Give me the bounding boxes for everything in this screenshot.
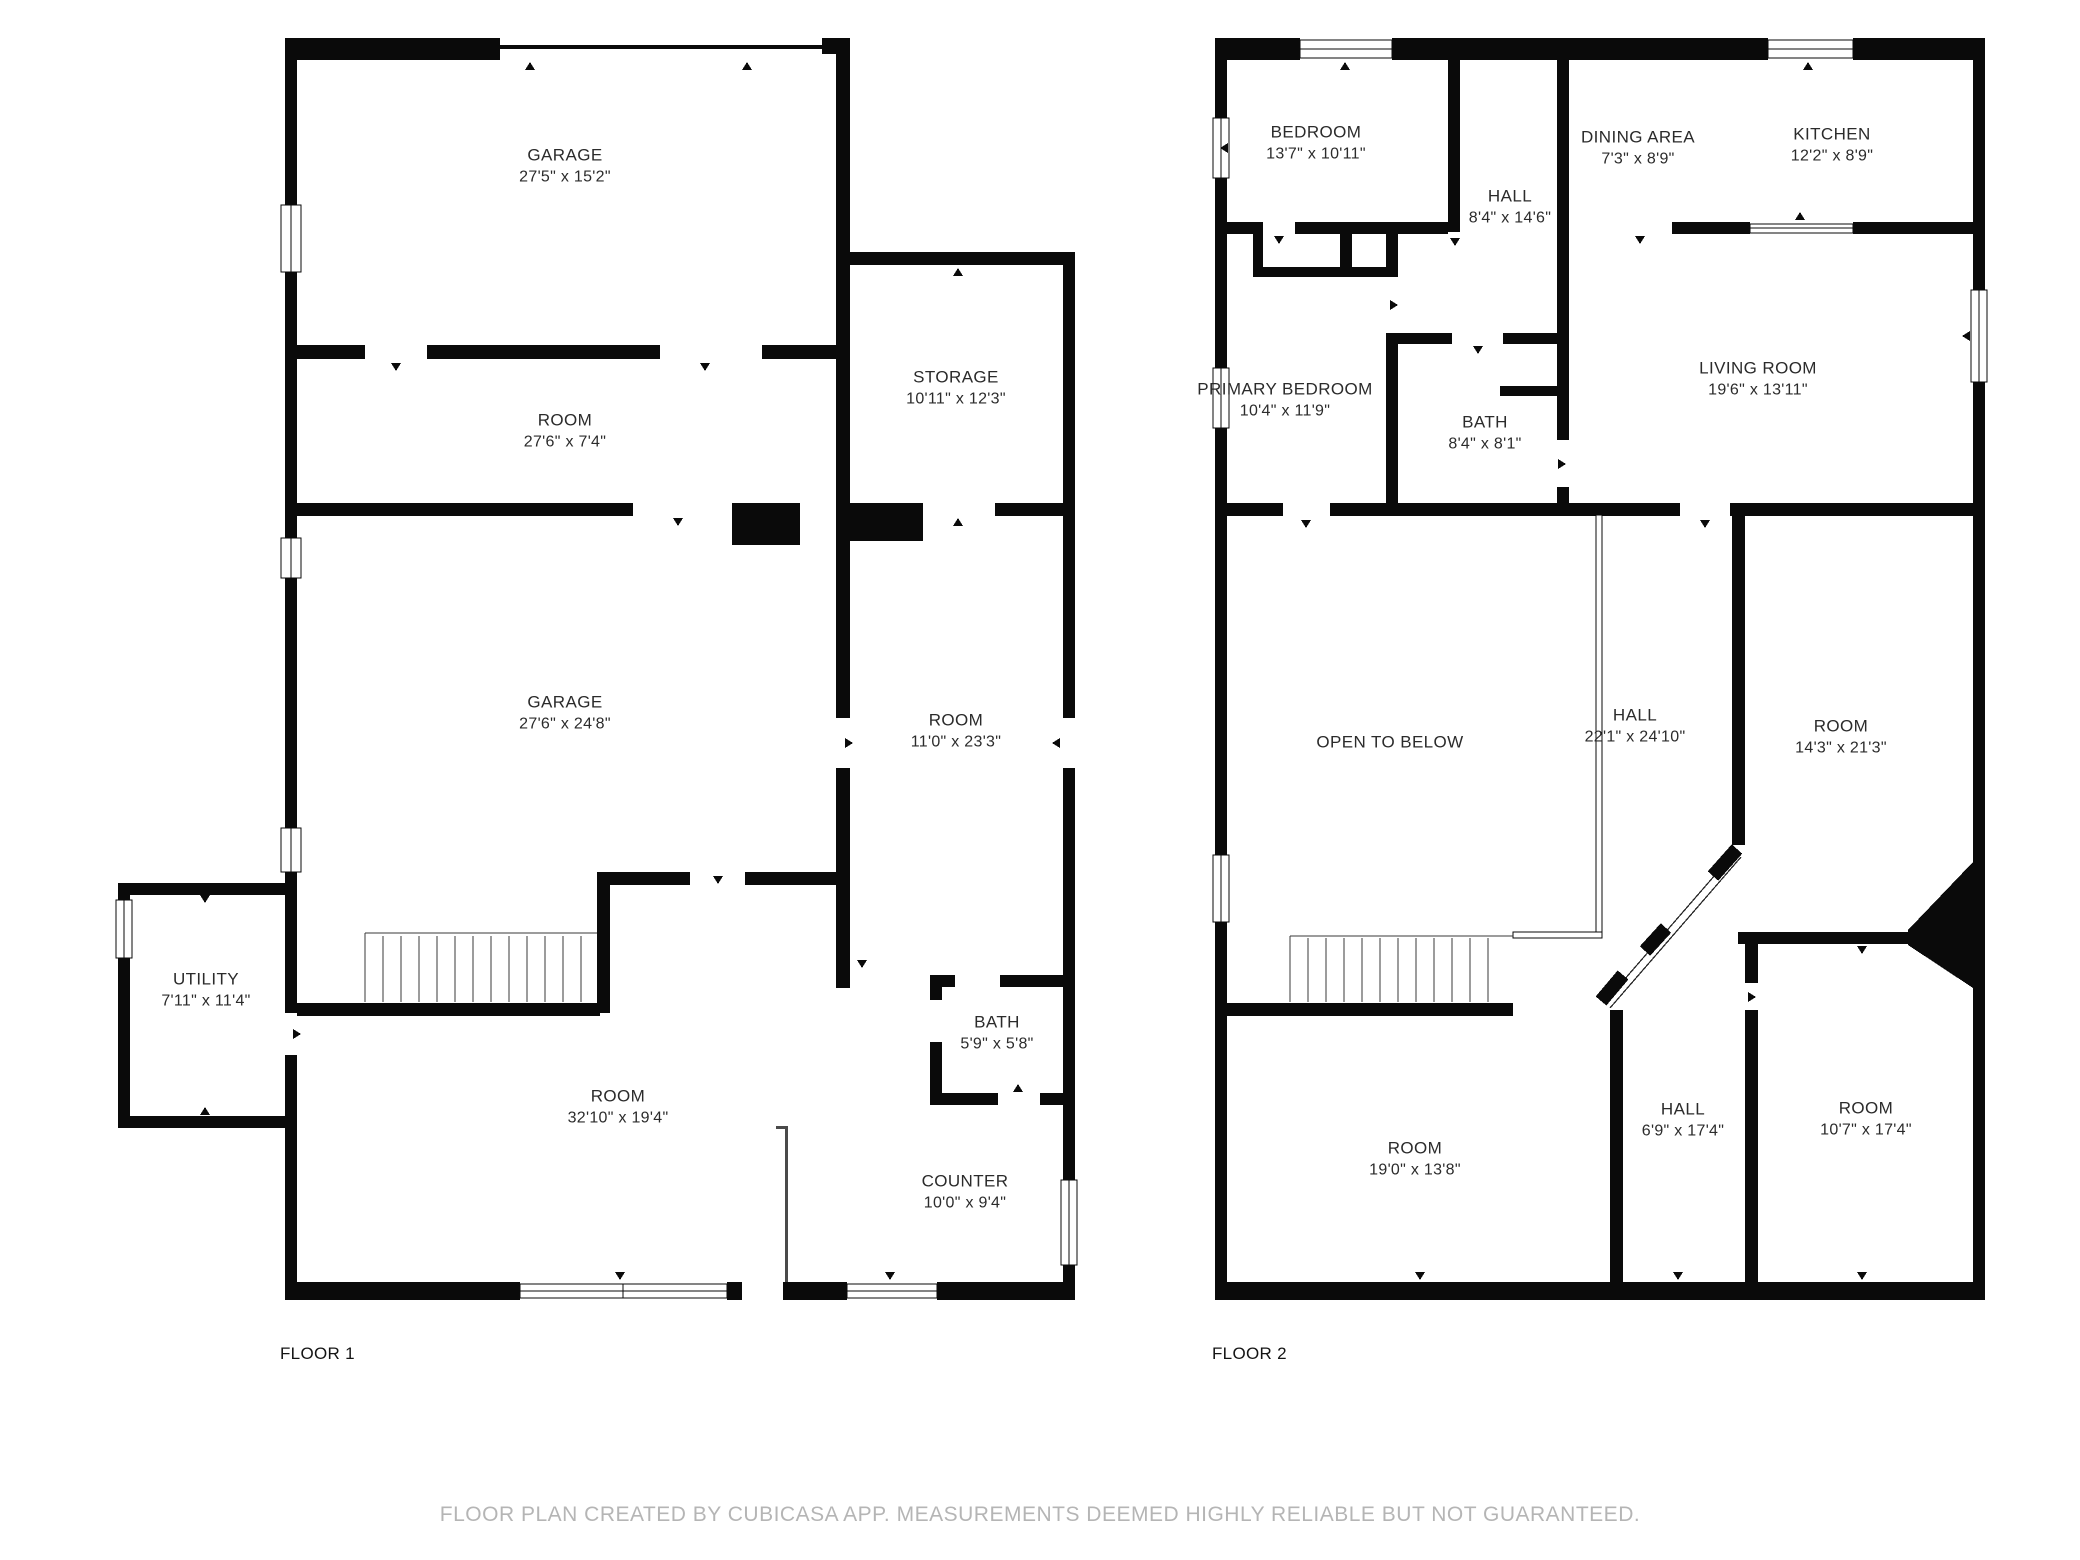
room-name: HALL: [1585, 704, 1686, 727]
room-name: HALL: [1642, 1098, 1724, 1121]
floor1-room-label-garage-main: GARAGE 27'6" x 24'8": [519, 691, 611, 736]
room-dims: 14'3" x 21'3": [1795, 738, 1887, 760]
floor1-room-label-garage-upper: GARAGE 27'5" x 15'2": [519, 144, 611, 189]
room-name: UTILITY: [161, 968, 250, 991]
room-dims: 5'9" x 5'8": [960, 1034, 1033, 1056]
floor2-diagonal-wall: [1601, 849, 1741, 1008]
room-name: GARAGE: [519, 691, 611, 714]
floor2-room-label-dining-area: DINING AREA 7'3" x 8'9": [1581, 126, 1695, 171]
room-dims: 13'7" x 10'11": [1266, 144, 1366, 166]
floor1-room-label-room-east: ROOM 11'0" x 23'3": [911, 709, 1001, 754]
room-dims: 19'6" x 13'11": [1699, 380, 1817, 402]
room-dims: 27'6" x 7'4": [524, 432, 606, 454]
floor2-caption: FLOOR 2: [1212, 1345, 1287, 1363]
floor2-room-label-hall-upper: HALL 8'4" x 14'6": [1469, 185, 1551, 230]
floor2-room-label-bath: BATH 8'4" x 8'1": [1448, 411, 1521, 456]
room-dims: 10'7" x 17'4": [1820, 1120, 1912, 1142]
floor2-stairs: [1290, 936, 1513, 1002]
room-name: KITCHEN: [1791, 123, 1873, 146]
floor1-room-label-utility: UTILITY 7'11" x 11'4": [161, 968, 250, 1013]
room-name: BATH: [1448, 411, 1521, 434]
floor1-room-label-storage: STORAGE 10'11" x 12'3": [906, 366, 1006, 411]
room-name: ROOM: [911, 709, 1001, 732]
floor1-room-label-room-upper: ROOM 27'6" x 7'4": [524, 409, 606, 454]
room-name: PRIMARY BEDROOM: [1197, 378, 1372, 401]
room-name: STORAGE: [906, 366, 1006, 389]
room-dims: 7'11" x 11'4": [161, 991, 250, 1013]
room-dims: 6'9" x 17'4": [1642, 1121, 1724, 1143]
floor1-room-label-bath: BATH 5'9" x 5'8": [960, 1011, 1033, 1056]
floor2-room-label-primary-bedroom: PRIMARY BEDROOM 10'4" x 11'9": [1197, 378, 1372, 423]
floor1-counter-partition: [776, 1126, 788, 1282]
floor2-room-label-room-se: ROOM 10'7" x 17'4": [1820, 1097, 1912, 1142]
room-dims: 32'10" x 19'4": [568, 1108, 669, 1130]
room-name: DINING AREA: [1581, 126, 1695, 149]
floor1-stairs: [365, 933, 597, 1002]
room-dims: 8'4" x 8'1": [1448, 434, 1521, 456]
room-name: BEDROOM: [1266, 121, 1366, 144]
room-dims: 27'6" x 24'8": [519, 714, 611, 736]
room-name: LIVING ROOM: [1699, 357, 1817, 380]
floor2-room-label-living-room: LIVING ROOM 19'6" x 13'11": [1699, 357, 1817, 402]
floor2-room-label-open-to-below: OPEN TO BELOW: [1316, 731, 1463, 754]
room-dims: 22'1" x 24'10": [1585, 727, 1686, 749]
room-name: BATH: [960, 1011, 1033, 1034]
room-dims: 7'3" x 8'9": [1581, 149, 1695, 171]
room-name: HALL: [1469, 185, 1551, 208]
room-dims: 8'4" x 14'6": [1469, 208, 1551, 230]
floor1-caption: FLOOR 1: [280, 1345, 355, 1363]
room-name: OPEN TO BELOW: [1316, 731, 1463, 754]
room-dims: 10'4" x 11'9": [1197, 401, 1372, 423]
room-name: ROOM: [1820, 1097, 1912, 1120]
floorplan-drawing: [0, 0, 2080, 1560]
room-name: GARAGE: [519, 144, 611, 167]
room-name: ROOM: [568, 1085, 669, 1108]
room-dims: 11'0" x 23'3": [911, 732, 1001, 754]
room-name: ROOM: [1795, 715, 1887, 738]
floor2-room-label-hall-lower: HALL 6'9" x 17'4": [1642, 1098, 1724, 1143]
floor2-room-label-hall-mid: HALL 22'1" x 24'10": [1585, 704, 1686, 749]
floor2-room-label-bedroom: BEDROOM 13'7" x 10'11": [1266, 121, 1366, 166]
room-dims: 19'0" x 13'8": [1369, 1160, 1461, 1182]
room-dims: 10'0" x 9'4": [922, 1193, 1009, 1215]
floor-plan-page: { "disclaimer": "FLOOR PLAN CREATED BY C…: [0, 0, 2080, 1560]
room-dims: 10'11" x 12'3": [906, 389, 1006, 411]
room-name: ROOM: [1369, 1137, 1461, 1160]
room-name: ROOM: [524, 409, 606, 432]
floor2-room-label-room-ne: ROOM 14'3" x 21'3": [1795, 715, 1887, 760]
floor2-room-label-kitchen: KITCHEN 12'2" x 8'9": [1791, 123, 1873, 168]
disclaimer-text: FLOOR PLAN CREATED BY CUBICASA APP. MEAS…: [0, 1503, 2080, 1527]
floor2-room-label-room-sw: ROOM 19'0" x 13'8": [1369, 1137, 1461, 1182]
floor1-room-label-room-lower: ROOM 32'10" x 19'4": [568, 1085, 669, 1130]
room-dims: 27'5" x 15'2": [519, 167, 611, 189]
floor1-room-label-counter: COUNTER 10'0" x 9'4": [922, 1170, 1009, 1215]
room-dims: 12'2" x 8'9": [1791, 146, 1873, 168]
room-name: COUNTER: [922, 1170, 1009, 1193]
